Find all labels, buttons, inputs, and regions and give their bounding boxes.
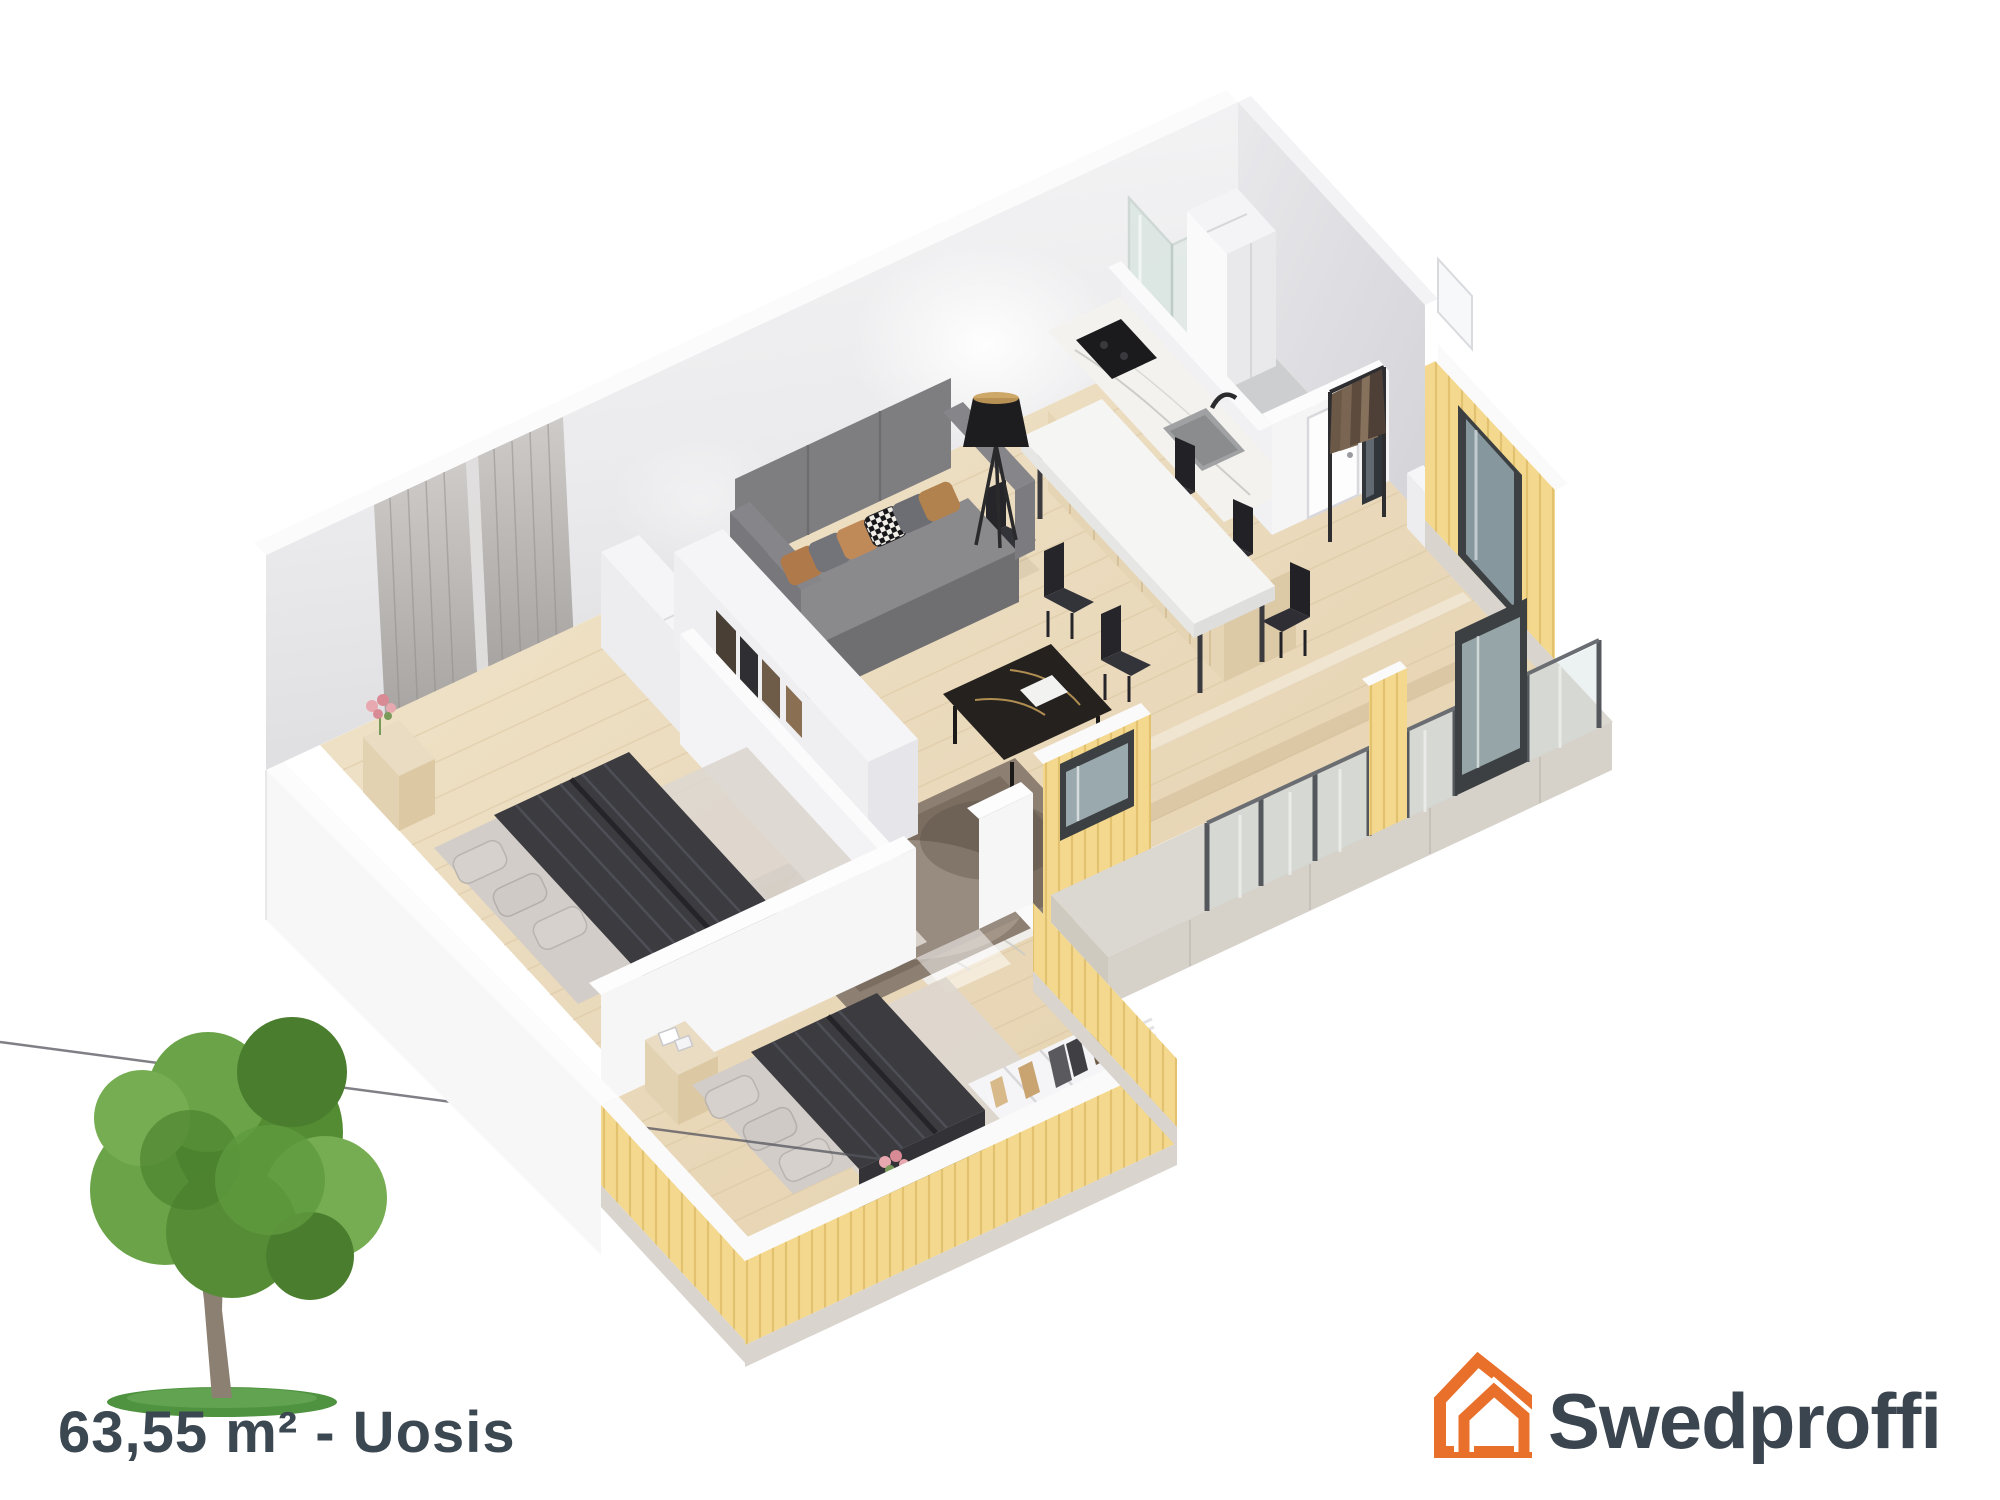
floor-plan-render: 63,55 m² - Uosis Swedproffi (0, 0, 2000, 1500)
tree-image (90, 1017, 387, 1417)
wall-mirror (1438, 259, 1472, 349)
logo-text: Swedproffi (1548, 1377, 1941, 1465)
facade-window (1455, 598, 1527, 796)
logo-house-icon (1440, 1360, 1526, 1452)
area-label: 63,55 m² - Uosis (58, 1400, 516, 1465)
brand-logo: Swedproffi (1440, 1360, 1941, 1465)
floor-plan-screenshot: 63,55 m² - Uosis Swedproffi (0, 0, 2000, 1500)
